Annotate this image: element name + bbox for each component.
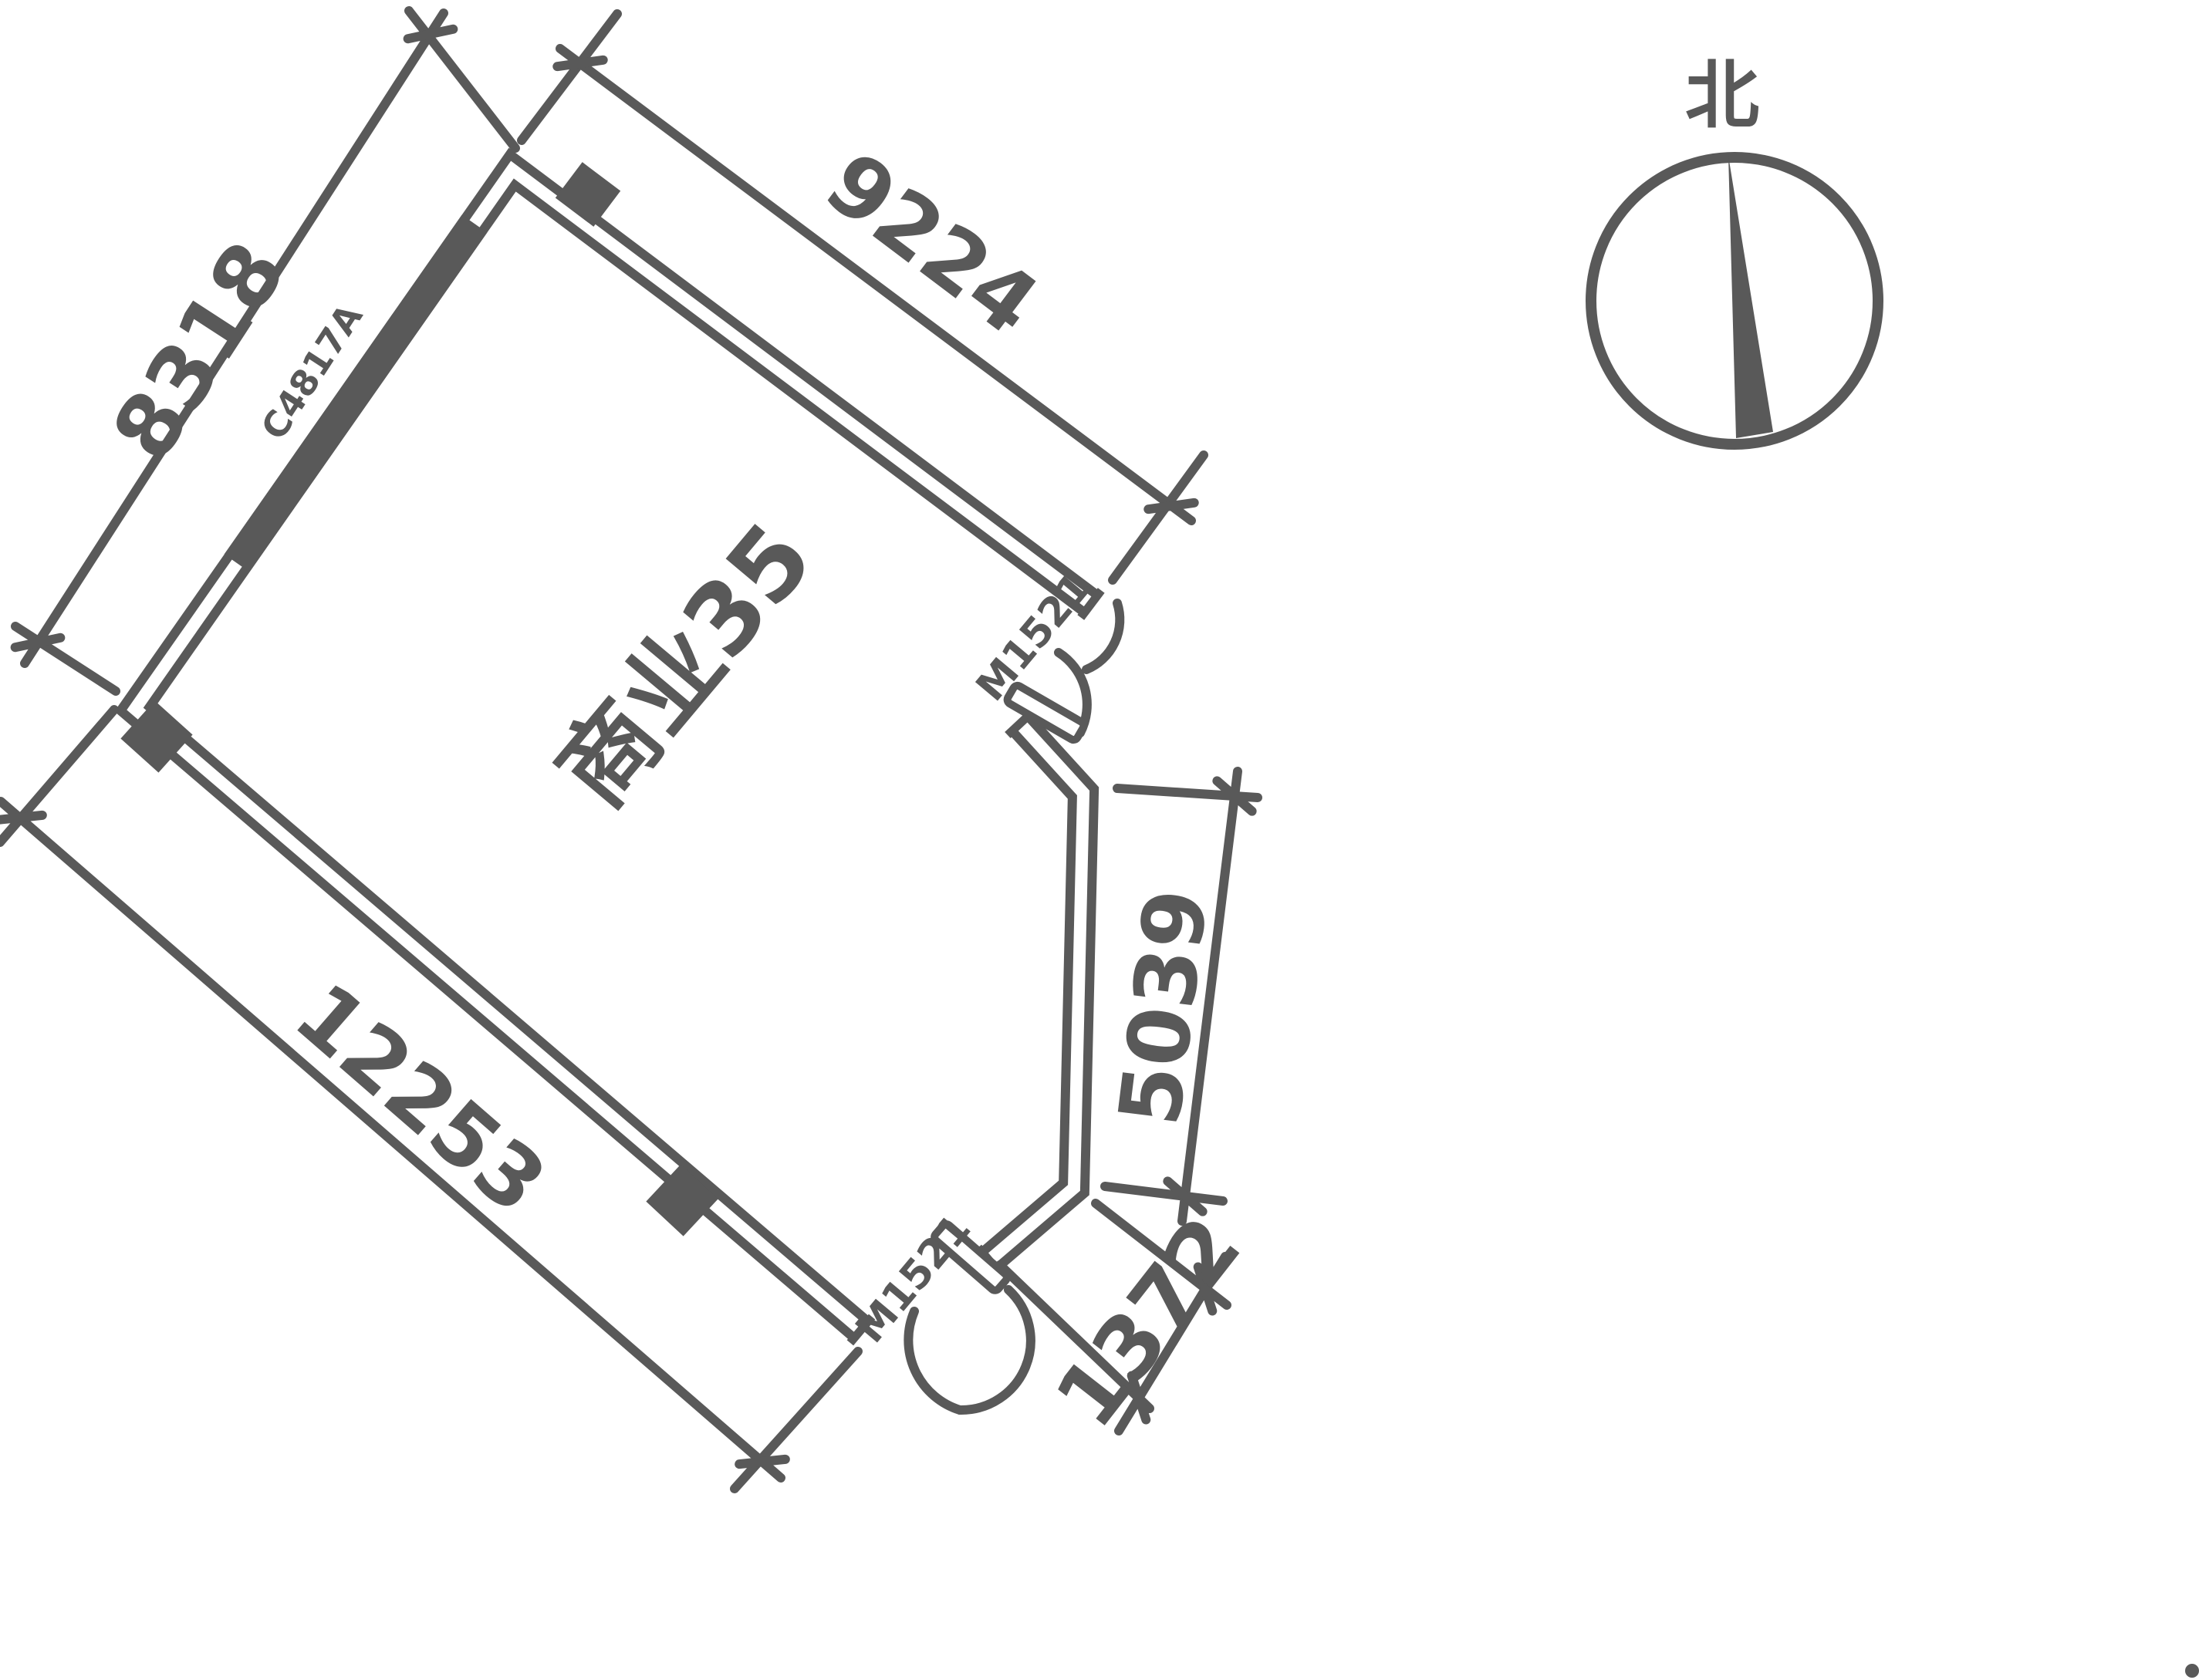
extension-line [735,1351,858,1489]
dimension-line [1,801,781,1478]
dimension-text: 5039 [1100,884,1227,1130]
dimension-tick [739,1459,785,1464]
dimension-tick [557,60,603,66]
dimension-tick [408,29,454,39]
dimension-top-left: 8318 [15,11,515,691]
dimension-top-right: 9224 [522,14,1204,580]
dimension-text: 8318 [93,225,305,477]
dimension-tick [0,815,42,820]
stray-dot [2185,1664,2199,1678]
floor-plan-page: M1521 M1521 8318 9224 12253 [0,0,2199,1680]
dimension-right: 5039 [1100,771,1258,1221]
room-label: 商业35 [535,502,834,828]
extension-line [1105,1186,1223,1201]
dimension-tick [1148,503,1194,509]
door-swing-arc [960,1290,1031,1410]
door-swing-arc [908,1311,960,1410]
dimension-bottom-left: 12253 [0,710,858,1489]
dimension-text: 12253 [277,964,565,1233]
compass-needle-icon [1728,156,1773,438]
door-swing-arc [1086,603,1120,670]
north-compass: 北 [1591,52,1878,444]
floor-plan-canvas: M1521 M1521 8318 9224 12253 [0,0,2199,1680]
north-label: 北 [1685,52,1759,139]
